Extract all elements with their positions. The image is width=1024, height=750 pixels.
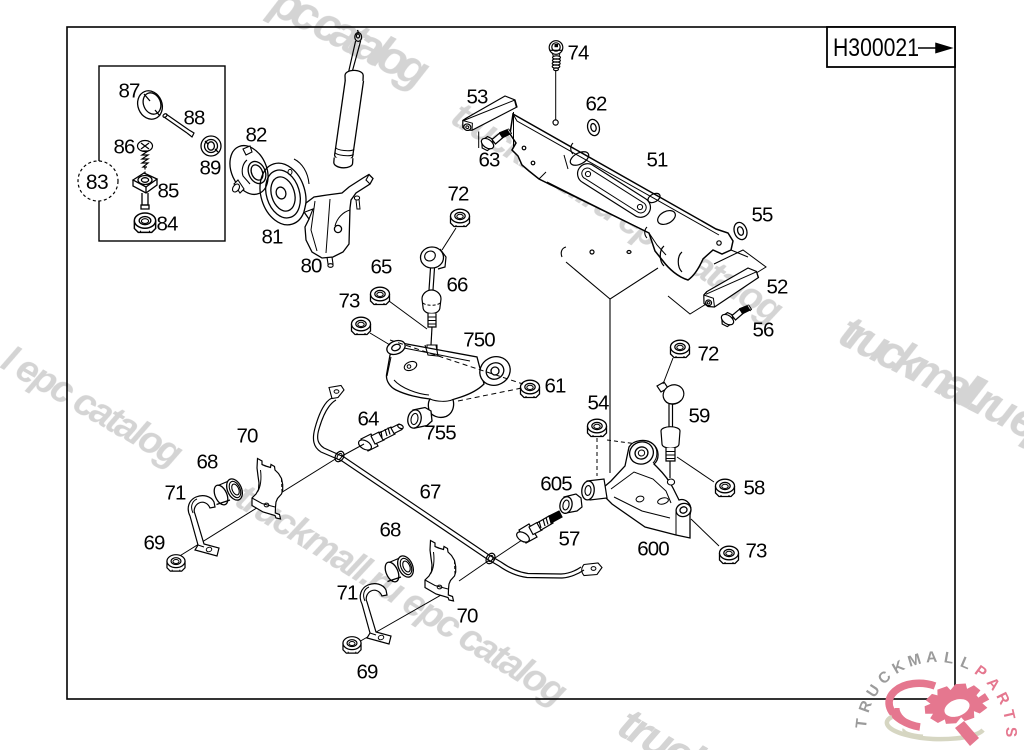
svg-text:65: 65 [370,256,392,279]
svg-text:70: 70 [236,425,258,448]
svg-text:S: S [1002,727,1019,737]
svg-text:57: 57 [558,528,580,551]
svg-text:73: 73 [338,290,360,313]
svg-text:L: L [943,649,955,667]
svg-text:A: A [925,649,937,667]
svg-text:84: 84 [156,213,178,236]
svg-text:88: 88 [183,107,205,130]
svg-text:62: 62 [585,93,607,116]
svg-text:R: R [992,690,1012,708]
svg-text:63: 63 [478,149,500,172]
svg-text:72: 72 [447,183,469,206]
svg-text:H300021: H300021 [833,34,919,62]
svg-text:l epc catalog: l epc catalog [0,338,190,475]
svg-text:68: 68 [379,519,401,542]
svg-text:86: 86 [113,136,135,159]
svg-text:L: L [958,654,973,673]
svg-text:755: 755 [424,422,456,445]
svg-text:T: T [999,708,1018,722]
svg-text:73: 73 [745,540,767,563]
svg-text:61: 61 [544,375,566,398]
svg-text:69: 69 [356,661,378,684]
svg-text:71: 71 [336,582,358,605]
svg-text:82: 82 [245,124,267,147]
svg-text:52: 52 [766,276,788,299]
svg-text:67: 67 [419,481,441,504]
svg-text:605: 605 [540,473,572,496]
svg-text:56: 56 [752,319,774,342]
svg-text:64: 64 [357,408,379,431]
svg-text:74: 74 [567,42,589,65]
svg-text:truckmall.ru epc catalog: truckmall.ru epc catalog [228,476,574,714]
svg-text:89: 89 [199,157,221,180]
svg-text:59: 59 [688,405,710,428]
svg-text:R: R [856,699,876,715]
svg-text:M: M [906,651,923,671]
svg-text:P: P [971,662,989,682]
svg-text:U: U [863,682,883,701]
svg-text:55: 55 [751,204,773,227]
svg-text:truckmall: truckmall [610,697,793,750]
svg-text:54: 54 [587,392,609,415]
svg-text:81: 81 [261,226,283,249]
svg-text:71: 71 [164,482,186,505]
svg-text:750: 750 [463,329,495,352]
svg-text:70: 70 [456,605,478,628]
svg-text:truckmall.ru epc: truckmall.ru epc [831,304,1024,468]
svg-text:68: 68 [196,451,218,474]
svg-text:C: C [875,668,895,688]
svg-text:K: K [890,657,909,678]
svg-text:A: A [983,674,1003,694]
svg-text:600: 600 [637,538,669,561]
svg-text:87: 87 [118,80,140,103]
svg-text:69: 69 [143,532,165,555]
svg-text:58: 58 [743,477,765,500]
svg-text:51: 51 [646,149,668,172]
svg-text:83: 83 [86,171,108,194]
svg-text:T: T [853,717,871,729]
svg-text:85: 85 [157,180,179,203]
svg-text:80: 80 [300,255,322,278]
svg-text:53: 53 [466,86,488,109]
svg-text:72: 72 [697,343,719,366]
svg-text:66: 66 [446,274,468,297]
